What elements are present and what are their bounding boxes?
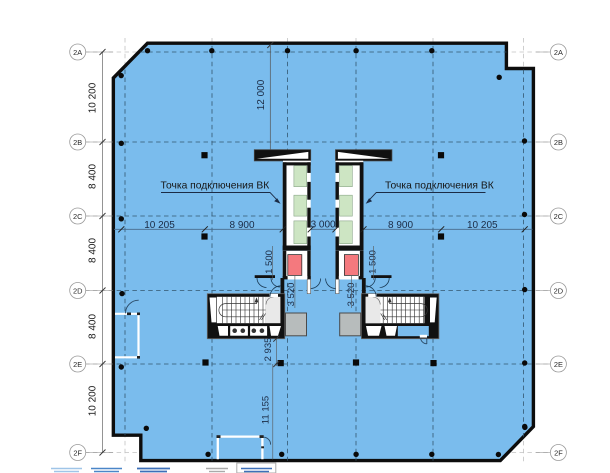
svg-text:8 900: 8 900 — [388, 220, 413, 231]
svg-text:Точка подключения ВК: Точка подключения ВК — [385, 180, 494, 191]
svg-text:2F: 2F — [554, 448, 563, 457]
svg-text:11 155: 11 155 — [261, 396, 272, 424]
svg-text:8 400: 8 400 — [88, 238, 99, 263]
svg-text:2A: 2A — [73, 48, 82, 57]
svg-text:2C: 2C — [554, 212, 564, 221]
svg-text:10 200: 10 200 — [88, 82, 99, 113]
svg-text:2 935: 2 935 — [263, 338, 274, 362]
svg-text:12 000: 12 000 — [256, 79, 267, 110]
svg-text:2E: 2E — [73, 360, 82, 369]
svg-text:10 205: 10 205 — [467, 220, 498, 231]
svg-text:2F: 2F — [73, 448, 82, 457]
svg-text:2B: 2B — [554, 138, 563, 147]
svg-text:2E: 2E — [554, 360, 563, 369]
svg-text:2A: 2A — [554, 48, 563, 57]
svg-text:2D: 2D — [554, 286, 563, 295]
svg-text:Точка подключения ВК: Точка подключения ВК — [161, 180, 270, 191]
svg-text:2B: 2B — [73, 138, 82, 147]
svg-text:10 200: 10 200 — [88, 385, 99, 416]
svg-text:8 400: 8 400 — [88, 314, 99, 339]
svg-text:2D: 2D — [73, 286, 82, 295]
svg-text:1 500: 1 500 — [368, 250, 379, 274]
svg-text:8 400: 8 400 — [88, 164, 99, 189]
svg-text:2C: 2C — [73, 212, 83, 221]
svg-text:3 000: 3 000 — [311, 220, 336, 231]
svg-text:1 500: 1 500 — [264, 250, 275, 274]
svg-text:8 900: 8 900 — [229, 220, 254, 231]
svg-text:10 205: 10 205 — [144, 220, 175, 231]
